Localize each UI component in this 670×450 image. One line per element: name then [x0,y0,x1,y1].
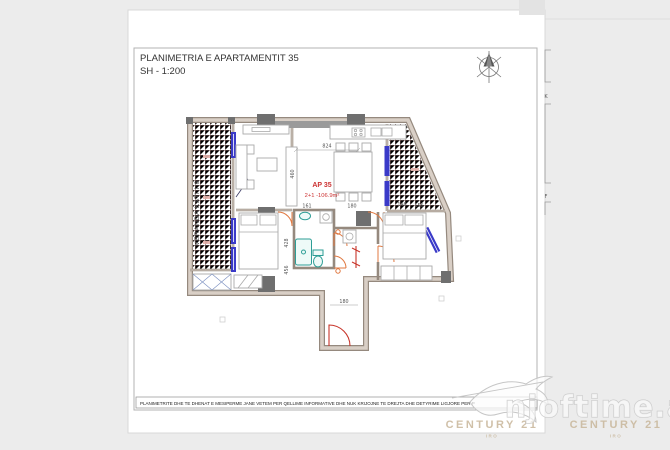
sheet-top-notch [519,0,545,15]
watermark-text: njoftime.al [505,390,670,425]
dim-bath-width: 161 [302,204,311,210]
dim-entry-width: 180 [339,299,348,305]
apartment-type-area: 2+1 -106.9m² [305,193,340,199]
listing-image: PLANIMETRIA E APARTAMENTIT 35 SH - 1:200 [0,0,670,450]
dim-bed1-height: 428 [284,238,290,247]
kitchen-counter [330,125,406,139]
washbasin [300,212,311,220]
brand-right-sub: IRO [610,434,623,439]
floorplan-sheet-svg: PLANIMETRIA E APARTAMENTIT 35 SH - 1:200 [0,0,670,450]
toilet-tank [313,250,323,256]
bed-2 [383,213,426,259]
plan-title: PLANIMETRIA E APARTAMENTIT 35 [140,53,299,64]
kitchen-appliance [343,230,356,243]
wardrobe-1 [193,274,231,290]
dim-living-height: 460 [290,169,296,178]
dim-kitchen-top: 824 [322,144,331,150]
dim-balcony-2: 155 [414,203,423,209]
disclaimer-text: PLANIMETRITE DHE TE DHENAT E MESIPERME J… [140,401,475,406]
plan-scale: SH - 1:200 [140,66,185,77]
sofa [236,145,247,189]
washing-machine [320,211,332,223]
dim-hall-width: 180 [347,204,356,210]
bed-1 [239,213,278,269]
margin-note-f: F [545,194,548,200]
veranda-label: VERANDA KATI I 6 [194,180,201,245]
dim-balcony-1: 146 [397,202,406,208]
apartment-code: AP 35 [312,182,331,189]
coffee-table [257,158,277,171]
brand-left-sub: IRO [486,434,499,439]
wardrobe-2 [381,266,432,280]
toilet [314,256,323,267]
dresser [234,275,262,288]
tv-unit [243,125,289,134]
dining-table [334,152,372,192]
dim-bed1-width: 456 [284,265,290,274]
